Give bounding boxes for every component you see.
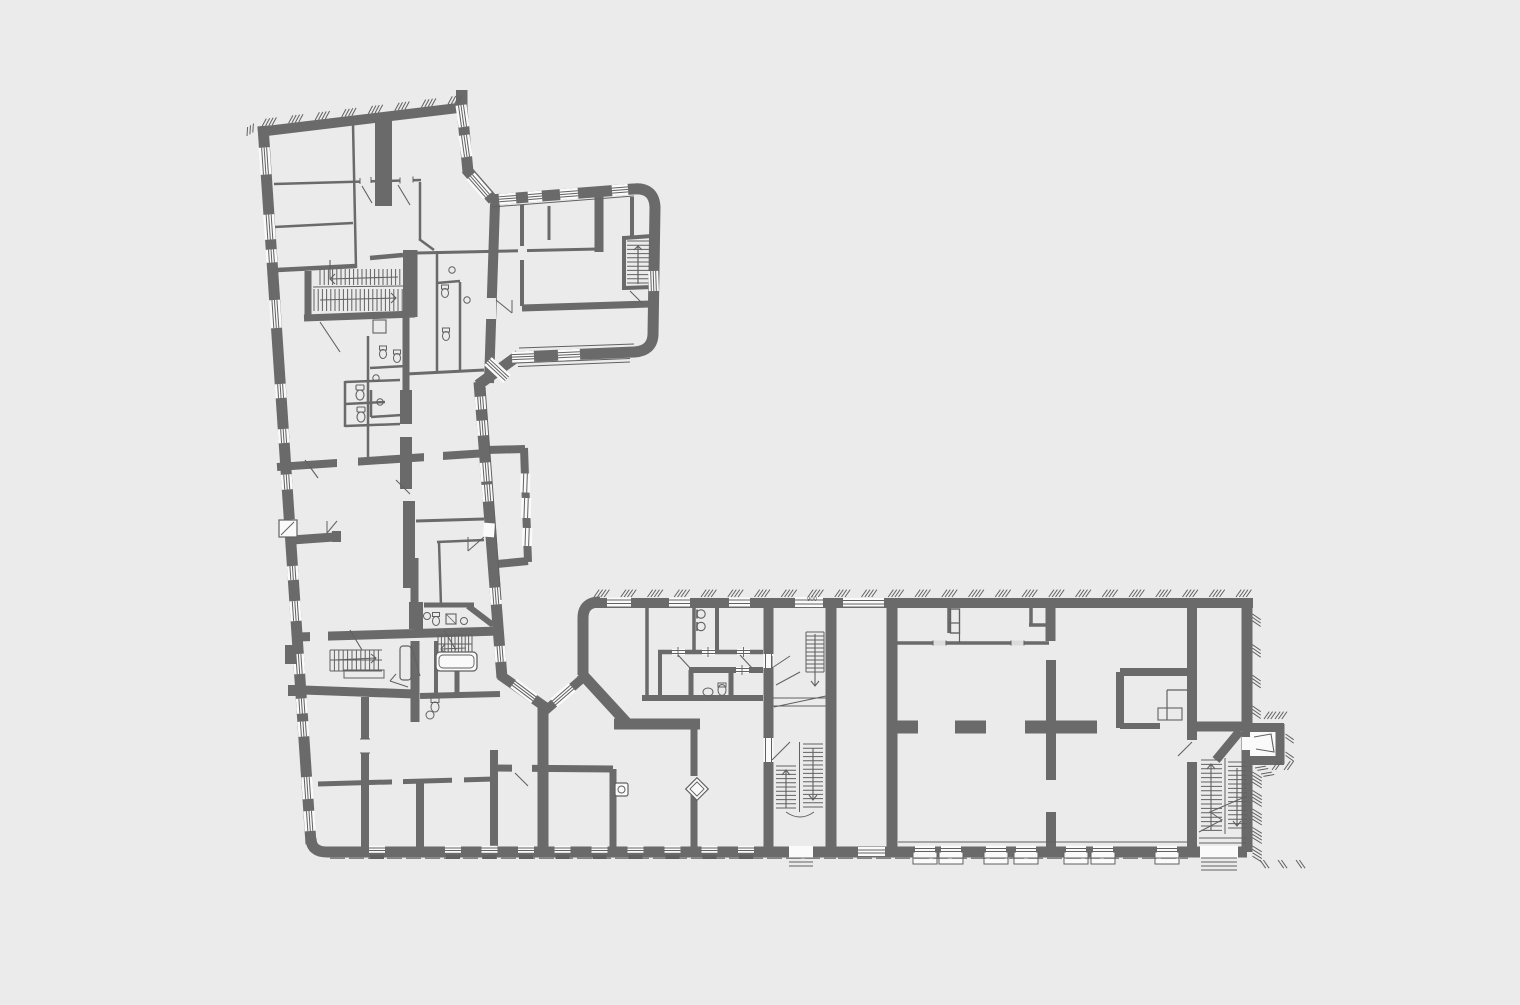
svg-text:900: 900 <box>807 597 818 603</box>
